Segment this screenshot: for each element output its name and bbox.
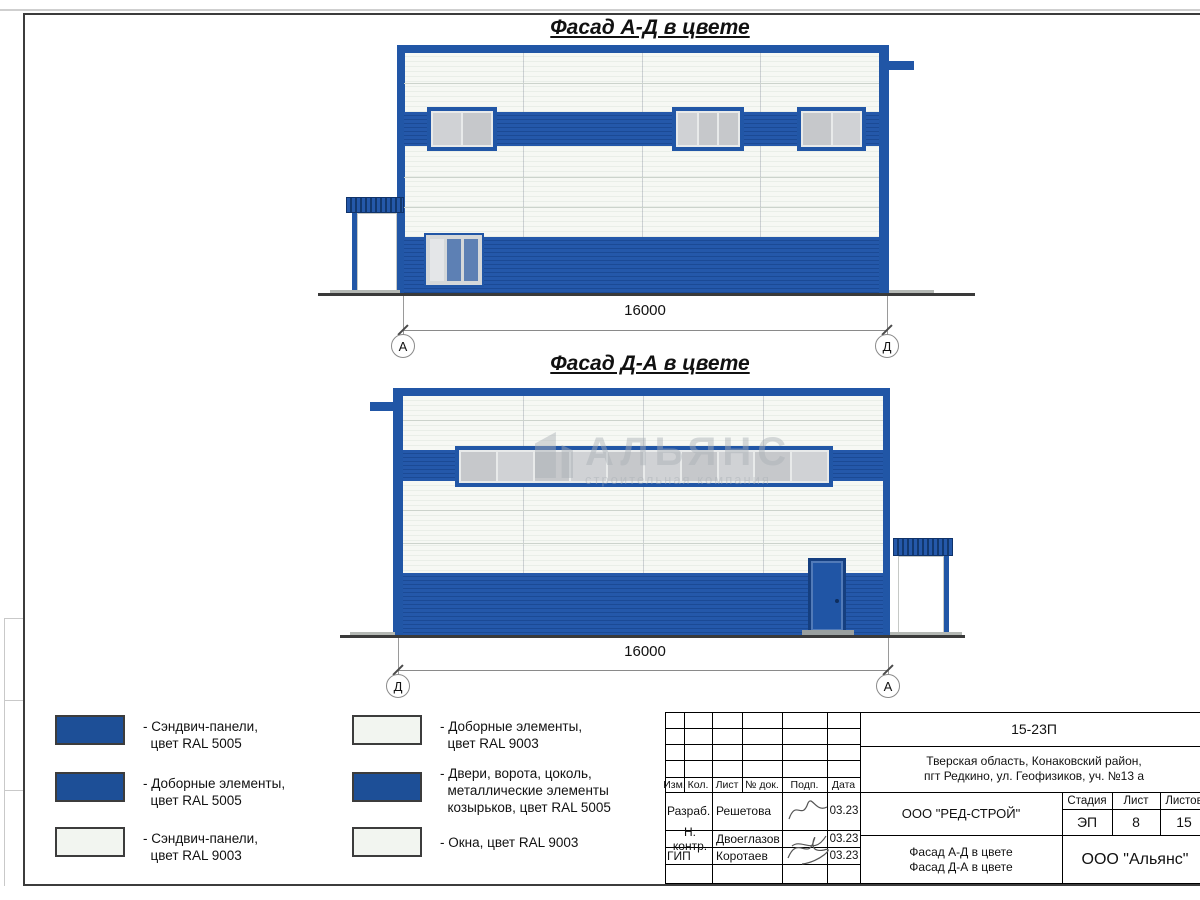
facade2-entrance-recess	[898, 556, 944, 636]
facade1-window-1	[427, 107, 497, 151]
tb-role: Н. контр.	[667, 831, 713, 847]
tb-sheets-label: Листов	[1160, 792, 1200, 809]
window-pane	[719, 113, 738, 145]
tb-name: Двоеглазов	[716, 831, 782, 847]
tb-role: Разраб.	[667, 798, 713, 824]
binding-margin-tick	[4, 618, 23, 619]
tb-company: ООО "РЕД-СТРОЙ"	[860, 792, 1062, 835]
facade2-corner-trim-left	[393, 396, 403, 636]
tb-sheet-label: Лист	[1112, 792, 1160, 809]
facade2-axis-marker-right: А	[876, 674, 900, 698]
window-pane	[833, 113, 861, 145]
facade1-panel-seam	[404, 177, 879, 178]
facade2-axis-marker-left: Д	[386, 674, 410, 698]
facade1-canopy-post	[352, 213, 357, 294]
facade2-panel-seam	[403, 420, 883, 421]
window-pane	[433, 113, 461, 145]
tb-col-podp: Подп.	[782, 777, 827, 792]
legend-swatch-trim-9003	[352, 715, 422, 745]
legend-swatch-windows-9003	[352, 827, 422, 857]
facade1-parapet-flashing	[397, 45, 889, 53]
facade2-dimension-value: 16000	[590, 643, 700, 660]
title-block-line	[665, 760, 860, 761]
tb-location: Тверская область, Конаковский район, пгт…	[860, 746, 1200, 792]
company-watermark: АЛЬЯНС строительная компания	[535, 432, 875, 502]
facade1-title: Фасад А-Д в цвете	[395, 16, 905, 40]
title-block-line	[665, 728, 860, 729]
window-pane	[447, 239, 461, 281]
legend-label: - Сэндвич-панели, цвет RAL 9003	[143, 830, 258, 864]
facade1-panel-seam	[404, 83, 879, 84]
legend-swatch-sandwich-9003	[55, 827, 125, 857]
facade2-dimension-line	[398, 670, 888, 671]
drawing-sheet: Фасад А-Д в цвете 16000 А Д Фаса	[0, 0, 1200, 900]
window-pane	[461, 452, 496, 481]
watermark-name: АЛЬЯНС	[585, 432, 792, 472]
watermark-tagline: строительная компания	[585, 472, 792, 487]
facade1-window-3	[797, 107, 866, 151]
signature	[786, 795, 830, 827]
tb-sheet-value: 8	[1112, 809, 1160, 835]
tb-col-ndok: № док.	[742, 777, 782, 792]
tb-org: ООО "Альянс"	[1062, 835, 1200, 884]
watermark-logo-icon	[535, 432, 573, 478]
legend-swatch-trim-5005	[55, 772, 125, 802]
tb-col-list: Лист	[712, 777, 742, 792]
window-pane	[678, 113, 697, 145]
facade2-gutter-outlet	[370, 402, 393, 411]
facade2-corner-trim-right	[883, 396, 890, 636]
facade2-ground-line	[340, 635, 965, 638]
legend-swatch-sandwich-5005	[55, 715, 125, 745]
facade1-gutter-outlet	[889, 61, 914, 70]
facade2-canopy-post	[944, 556, 949, 636]
facade1-ground-line	[318, 293, 975, 296]
tb-col-data: Дата	[827, 777, 860, 792]
facade2-door	[808, 558, 846, 634]
title-block-line	[782, 712, 783, 884]
title-block-line	[665, 864, 860, 865]
facade1-entrance-recess	[357, 213, 397, 294]
tb-date: 03.23	[828, 831, 860, 847]
binding-margin-tick	[4, 700, 23, 701]
window-pane	[463, 113, 491, 145]
window-pane	[464, 239, 478, 281]
tb-date: 03.23	[828, 848, 860, 864]
facade2-extension-line-right	[888, 638, 889, 678]
tb-date: 03.23	[828, 798, 860, 824]
binding-margin-line	[4, 618, 5, 886]
tb-sheet-title: Фасад А-Д в цвете Фасад Д-А в цвете	[860, 835, 1062, 884]
facade1-dimension-line	[403, 330, 887, 331]
facade1-window-2	[672, 107, 744, 151]
tb-role: ГИП	[667, 848, 713, 864]
legend-label: - Окна, цвет RAL 9003	[440, 834, 578, 851]
window-pane	[430, 239, 444, 281]
tb-name: Коротаев	[716, 848, 782, 864]
binding-margin-tick	[4, 790, 23, 791]
window-pane	[699, 113, 718, 145]
facade1-canopy	[346, 197, 404, 213]
tb-col-kol: Кол.	[684, 777, 712, 792]
facade2-title: Фасад Д-А в цвете	[395, 352, 905, 376]
facade1-window-lower	[424, 233, 484, 287]
facade1-dimension-value: 16000	[595, 302, 695, 319]
tb-col-izm: Изм.	[665, 777, 684, 792]
facade2-canopy	[893, 538, 953, 556]
facade2-parapet-flashing	[393, 388, 890, 396]
legend-swatch-doors-5005	[352, 772, 422, 802]
facade2-panel-seam	[403, 543, 883, 544]
page-top-divider	[0, 9, 1200, 11]
window-pane	[498, 452, 533, 481]
legend-label: - Сэндвич-панели, цвет RAL 5005	[143, 718, 258, 752]
tb-doc-number: 15-23П	[860, 712, 1200, 746]
legend-label: - Доборные элементы, цвет RAL 9003	[440, 718, 582, 752]
tb-stage-label: Стадия	[1062, 792, 1112, 809]
facade2-extension-line-left	[398, 638, 399, 678]
tb-name: Решетова	[716, 798, 782, 824]
door-handle	[835, 599, 839, 603]
facade2-panel-seam	[403, 510, 883, 511]
legend-label: - Двери, ворота, цоколь, металлические э…	[440, 765, 611, 816]
legend-label: - Доборные элементы, цвет RAL 5005	[143, 775, 285, 809]
facade1-corner-trim-right	[879, 52, 889, 294]
signature	[784, 828, 830, 868]
window-pane	[803, 113, 831, 145]
facade1-panel-seam	[404, 207, 879, 208]
tb-sheets-value: 15	[1160, 809, 1200, 835]
title-block-line	[665, 744, 860, 745]
tb-stage-value: ЭП	[1062, 809, 1112, 835]
